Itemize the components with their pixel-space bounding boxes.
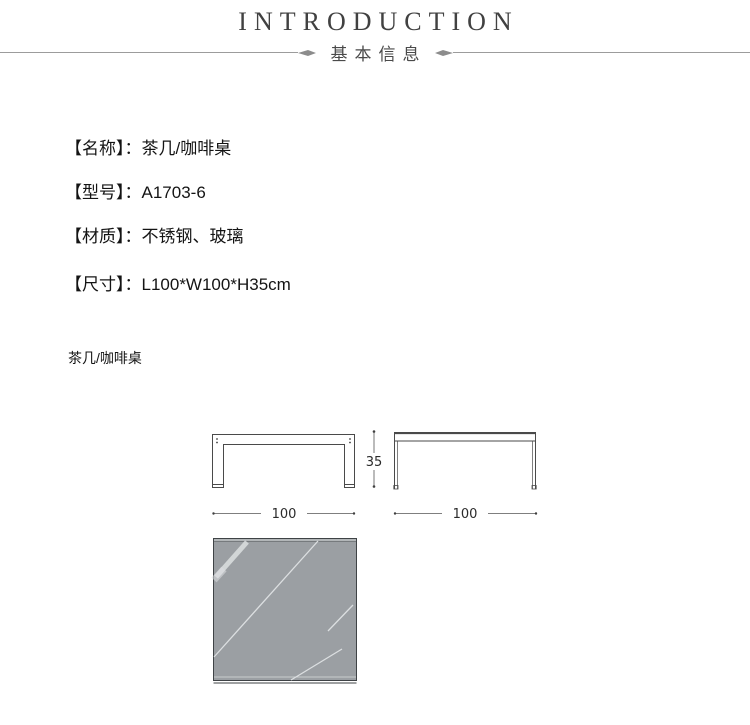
drawing-caption: 茶几/咖啡桌 — [68, 348, 142, 368]
height-dimension: 35 — [366, 430, 383, 488]
screw-dots-icon — [216, 438, 351, 443]
side-width-dimension-label: 100 — [453, 507, 478, 522]
spec-row-name: 【名称】：茶几/咖啡桌 — [65, 134, 291, 154]
divider-arrow-left-icon — [435, 49, 453, 57]
side-view-drawing — [394, 433, 536, 490]
spec-row-material: 【材质】：不锈钢、玻璃 — [65, 222, 291, 242]
spec-row-size: 【尺寸】：L100*W100*H35cm — [65, 270, 291, 290]
front-width-dimension-label: 100 — [272, 507, 297, 522]
spec-value: 不锈钢、玻璃 — [142, 227, 244, 246]
spec-label: 【尺寸】： — [65, 275, 142, 294]
spec-value: L100*W100*H35cm — [142, 275, 291, 294]
technical-drawing: 35 100 100 — [190, 425, 570, 715]
height-dimension-label: 35 — [366, 455, 383, 470]
front-width-dimension: 100 — [212, 507, 355, 522]
section-subtitle: 基本信息 — [331, 40, 427, 65]
divider-arrow-right-icon — [298, 49, 316, 57]
glass-top-surface — [214, 539, 357, 681]
divider-line-right — [453, 52, 750, 53]
spec-row-model: 【型号】：A1703-6 — [65, 178, 291, 198]
divider-line-left — [0, 52, 298, 53]
spec-value: A1703-6 — [142, 183, 206, 202]
section-divider: 基本信息 — [0, 44, 750, 61]
spec-label: 【名称】： — [65, 139, 142, 158]
spec-label: 【型号】： — [65, 183, 142, 202]
spec-value: 茶几/咖啡桌 — [142, 139, 232, 158]
page-title: INTRODUCTION — [0, 7, 750, 37]
side-width-dimension: 100 — [394, 507, 537, 522]
front-view-drawing — [213, 435, 355, 488]
spec-list: 【名称】：茶几/咖啡桌 【型号】：A1703-6 【材质】：不锈钢、玻璃 【尺寸… — [65, 134, 291, 314]
spec-label: 【材质】： — [65, 227, 142, 246]
product-introduction-page: INTRODUCTION 基本信息 【名称】：茶几/咖啡桌 【型号】：A1703… — [0, 0, 750, 725]
top-view-drawing — [214, 539, 357, 684]
